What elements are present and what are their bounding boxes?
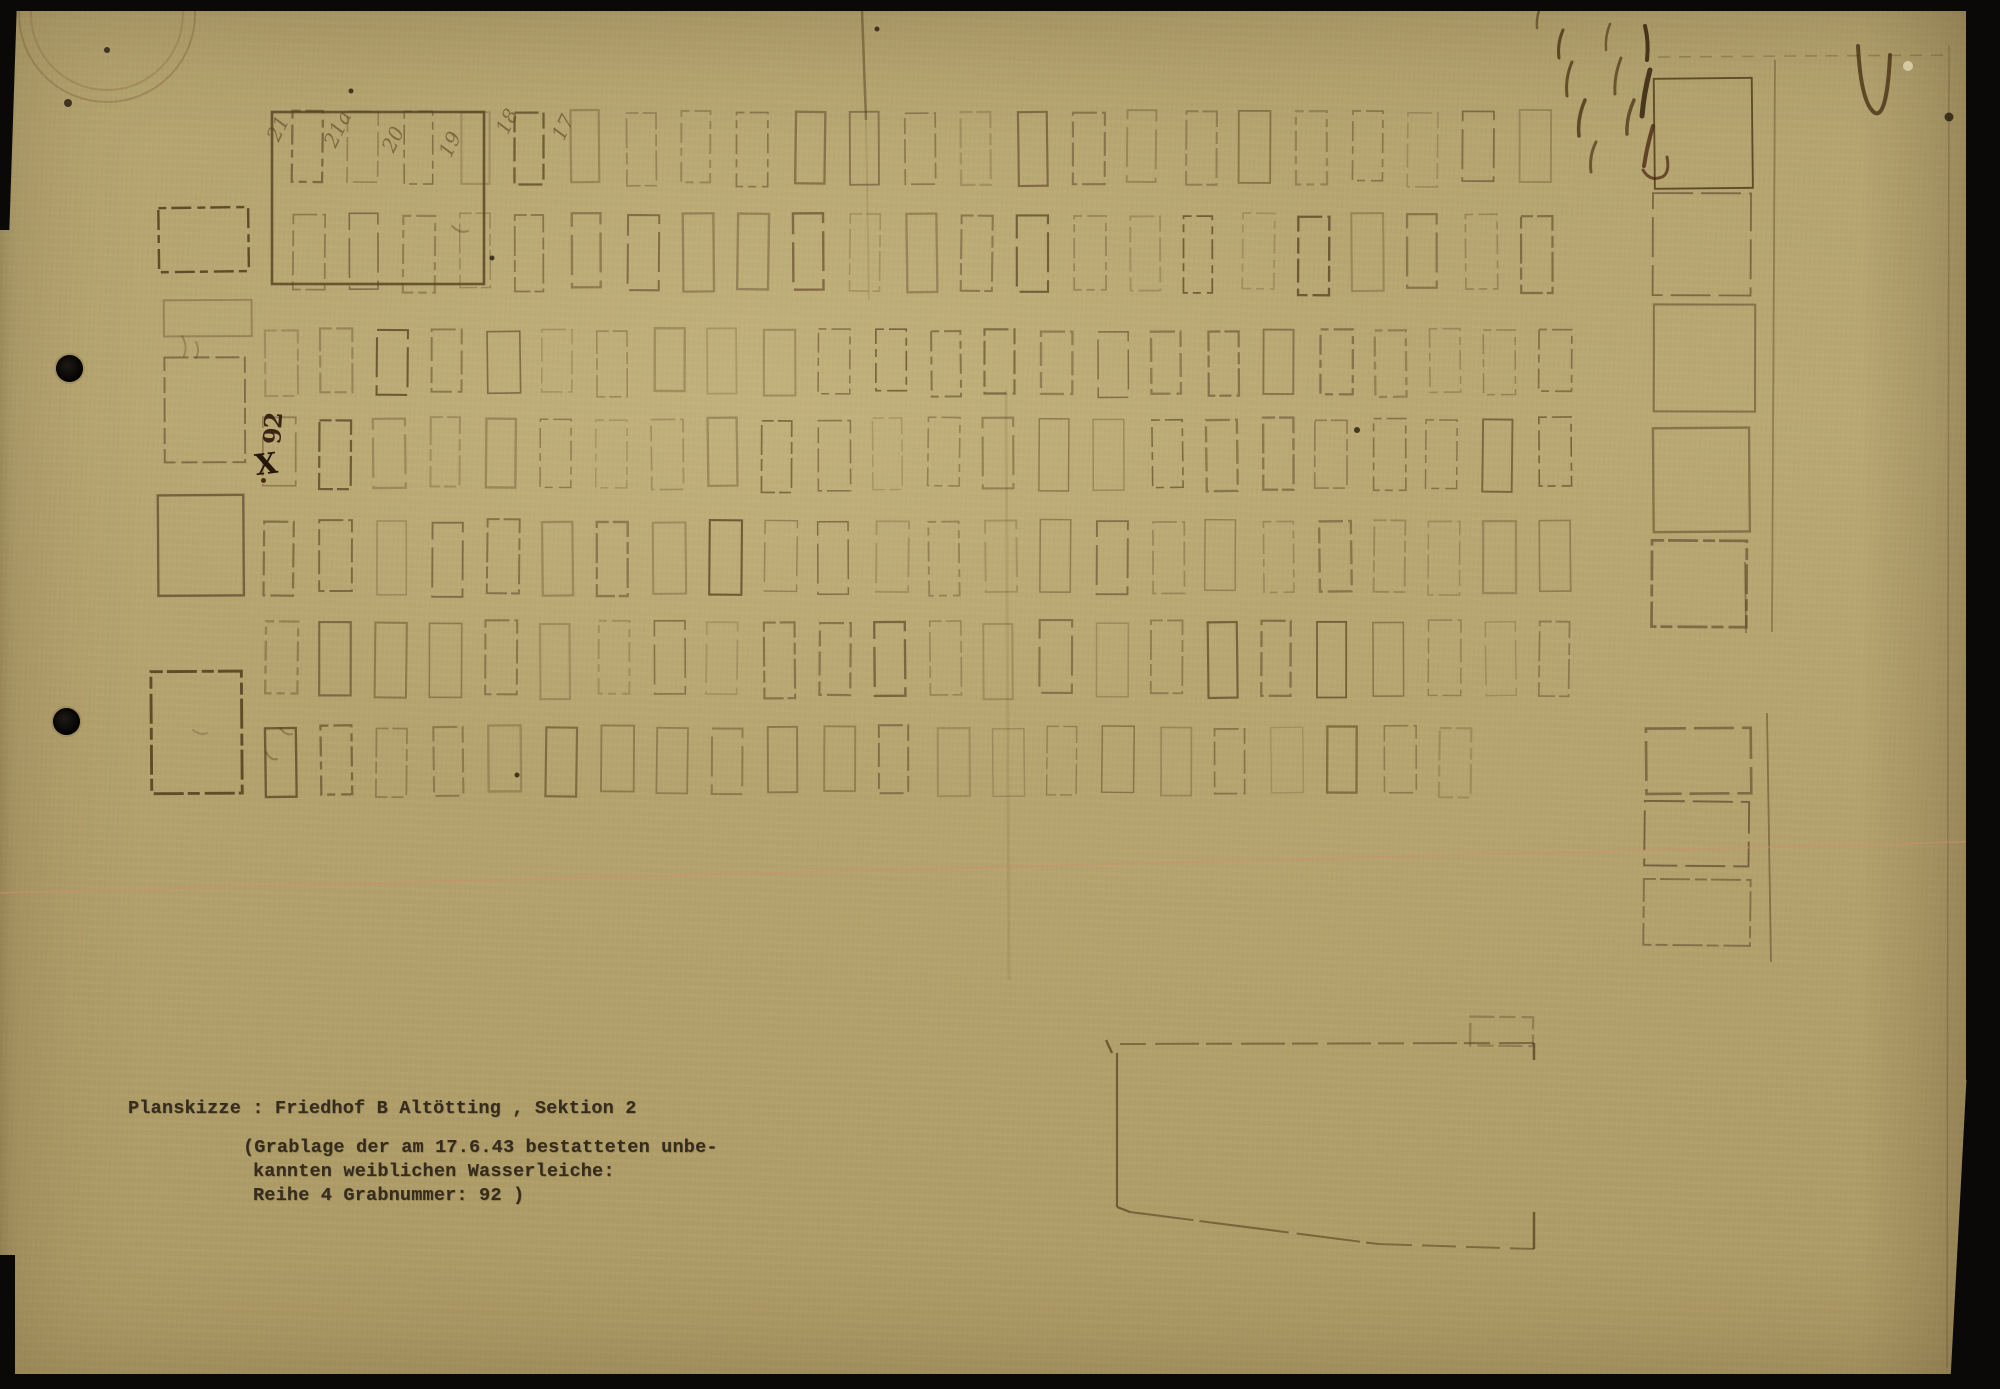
grave-cell-row-2 [1074,216,1106,290]
grave-cell-row-1 [1407,113,1438,187]
grave-cell-row-4 [1425,420,1457,489]
grave-cell-row-1 [1018,112,1048,186]
grave-cell-row-4 [319,420,351,489]
ink-speck [64,99,72,107]
grave-cell-row-6 [1373,622,1404,696]
grave-mark-cross: X [253,446,279,482]
ink-smudge [1644,126,1653,166]
right-plot [1644,801,1749,867]
grave-cell-row-3 [1483,330,1515,395]
grave-cell-row-3 [1041,332,1073,394]
grave-cell-row-4 [1039,419,1069,491]
grave-cell-row-6 [930,621,962,695]
grave-cell-row-3 [985,329,1015,393]
grave-mark-dot [261,478,266,483]
grave-cell-row-5 [1040,519,1071,592]
ink-smudge [1615,58,1621,94]
grave-cell-row-1 [1239,111,1271,183]
punch-hole-top [56,355,83,382]
grave-cell-row-1 [905,113,936,184]
grave-cell-row-4 [1206,420,1238,491]
boundary-line [1130,1212,1378,1244]
grave-cell-row-6 [1485,622,1516,696]
grave-cell-row-4 [596,420,627,488]
scan-edge-bottom [0,1374,2000,1389]
grave-cell-row-5 [1153,522,1185,594]
grave-cell-row-6 [1428,620,1461,695]
grave-cell-row-3 [764,330,795,396]
punch-hole-bottom [53,708,80,735]
grave-cell-row-3 [655,328,685,391]
grave-cell-row-2 [1298,217,1329,296]
grave-cell-row-2 [737,213,769,289]
ink-smudge [1642,70,1650,116]
grave-cell-row-2 [1242,213,1275,289]
grave-cell-row-5 [985,520,1017,592]
grave-cell-row-5 [876,521,909,592]
grave-cell-row-4 [708,418,738,486]
grave-cell-row-7 [656,728,688,794]
grave-cell-row-4 [1263,418,1294,490]
grave-cell-row-5 [319,520,352,591]
grave-cell-row-6 [540,624,570,699]
grave-cell-row-7 [1102,726,1135,793]
grave-cell-row-7 [1271,727,1304,793]
grave-cell-row-6 [319,622,351,695]
grave-cell-row-7 [768,727,798,792]
scan-edge-left-bottom [0,1255,15,1389]
grave-cell-row-4 [540,419,571,487]
grave-cell-row-5 [542,522,573,596]
grave-cell-row-2 [349,213,378,289]
grave-cell-row-4 [1374,419,1406,491]
ink-speck [1354,427,1360,433]
grave-cell-row-5 [1428,521,1460,595]
scan-edge-top [0,0,2000,11]
grave-cell-row-4 [1482,419,1512,492]
grave-cell-row-4 [1539,417,1572,486]
grave-cell-row-3 [1208,331,1239,395]
grave-cell-row-6 [1539,621,1570,696]
grave-cell-row-2 [1183,216,1212,293]
grave-cell-row-6 [265,621,298,693]
grave-cell-row-1 [627,113,657,186]
grave-cell-row-5 [487,519,520,593]
boundary-line [1745,562,1746,633]
ink-smudge [193,730,207,734]
ink-speck [349,89,354,94]
grave-cell-row-1 [681,111,710,183]
grave-cell-row-6 [429,623,461,697]
grave-cell-row-5 [764,520,797,591]
ink-smudge [1579,100,1585,136]
grave-cell-row-2 [460,213,491,288]
right-plot [1653,428,1750,533]
grave-cell-row-1 [404,111,433,184]
grave-cell-row-7 [545,727,577,796]
grave-cell-row-5 [597,522,628,596]
grave-cell-row-7 [601,725,634,791]
grave-cell-row-6 [599,621,630,694]
grave-cell-row-7 [1384,726,1416,793]
grave-cell-row-3 [542,329,572,391]
grave-cell-row-4 [872,418,902,490]
grave-cell-row-6 [485,620,517,694]
grave-cell-row-5 [653,522,686,594]
left-plot [158,207,249,272]
ink-speck [1945,113,1954,122]
right-plot [1643,879,1750,946]
grave-cell-row-2 [1017,215,1048,291]
grave-cell-row-3 [931,331,961,397]
grave-cell-row-4 [373,419,406,489]
grave-cell-row-7 [712,729,743,795]
paper-speck [1903,61,1913,71]
boundary-line [1947,45,1949,1368]
grave-cell-row-1 [1352,111,1383,181]
grave-cell-row-7 [1439,728,1471,798]
grave-cell-row-2 [1130,216,1160,290]
grave-cell-row-2 [572,213,601,287]
caption-note-line-2: kannten weiblichen Wasserleiche: [253,1161,615,1182]
caption-note-line-3: Reihe 4 Grabnummer: 92 ) [253,1185,524,1206]
ink-speck [875,27,880,32]
grave-cell-row-5 [1097,521,1128,594]
ink-smudge [1567,62,1572,96]
ink-smudge [1645,26,1648,60]
ink-smudge [182,336,198,358]
grave-cell-row-4 [928,417,960,486]
grave-cell-row-3 [1539,329,1572,391]
grave-cell-row-2 [628,215,660,290]
grave-cell-row-2 [515,215,544,292]
grave-cell-row-7 [433,727,463,796]
grave-cell-row-5 [928,522,959,596]
grave-cell-row-4 [1315,420,1347,488]
grave-cell-row-1 [292,111,323,182]
grave-cell-row-3 [487,331,521,393]
grave-cell-row-4 [761,421,791,493]
grave-cell-row-6 [874,622,905,696]
right-plot [1652,540,1747,627]
grave-cell-row-3 [707,328,737,393]
grave-cell-row-7 [1327,726,1357,792]
grave-cell-row-1 [461,112,489,184]
grave-cell-row-5 [263,522,293,596]
grave-cell-row-6 [1208,622,1238,698]
grave-cell-row-3 [1098,332,1129,398]
ink-smudge [266,728,292,759]
grave-cell-row-6 [1261,621,1291,696]
grave-cell-row-5 [709,520,742,595]
grave-cell-row-7 [879,725,908,793]
grave-cell-row-2 [1351,213,1383,291]
boundary-line [1378,1244,1534,1249]
grave-cell-row-5 [1483,521,1516,593]
grave-cell-row-1 [1296,111,1327,184]
boundary-line [1772,60,1775,632]
left-plot [164,357,245,462]
grave-cell-row-3 [265,330,298,396]
right-plot [1653,193,1751,296]
grave-cell-row-1 [795,112,825,184]
boundary-line [1658,55,1948,57]
caption-note-line-1: (Grablage der am 17.6.43 bestatteten unb… [243,1137,718,1158]
grave-cell-row-5 [432,523,463,597]
grave-cell-row-7 [1161,727,1191,795]
grave-cell-row-2 [849,214,880,291]
grave-cell-row-5 [1205,520,1236,591]
grave-cell-row-6 [1039,620,1072,693]
grave-cell-row-3 [1151,332,1181,394]
grave-cell-row-2 [683,213,714,291]
grave-cell-row-3 [1429,329,1460,393]
grave-cell-row-1 [850,112,879,185]
grave-cell-row-6 [375,623,407,698]
grave-cell-row-3 [320,328,353,392]
grave-cell-row-3 [1263,330,1293,394]
grave-cell-row-6 [1317,622,1346,698]
grave-cell-row-2 [293,214,325,289]
grave-cell-row-7 [265,728,297,797]
grave-cell-row-3 [1320,329,1352,394]
grave-cell-row-4 [818,421,850,491]
grave-cell-row-4 [1093,419,1124,490]
ink-speck [515,773,520,778]
boundary-line [1006,390,1009,980]
right-plot [1646,728,1751,794]
right-plot [1654,78,1753,189]
grave-cell-row-7 [376,728,407,797]
grave-cell-row-6 [1096,623,1128,697]
grave-cell-row-6 [654,621,685,694]
grave-cell-row-7 [824,726,855,791]
caption-title: Planskizze : Friedhof B Altötting , Sekt… [128,1098,637,1119]
grave-cell-row-5 [1263,521,1294,592]
boundary-line [1120,1043,1534,1044]
left-plot [158,495,244,596]
ink-smudge [1606,24,1610,50]
paper-sheet: 2121a20191817 92 X Planskizze : Friedhof… [0,0,2000,1389]
grave-cell-row-7 [1047,726,1077,795]
left-plot [164,300,252,337]
grave-cell-row-7 [938,728,970,796]
boundary-line [866,120,869,300]
grave-cell-row-1 [960,112,990,185]
grave-cell-row-5 [1319,521,1352,592]
boundary-line [1117,1207,1130,1212]
grave-cell-row-2 [1407,214,1437,288]
grave-cell-row-5 [1539,520,1571,591]
grave-mark-x92: 92 X [252,410,298,490]
grave-cell-row-1 [1462,111,1494,181]
grave-mark-number: 92 [257,412,288,445]
ink-smudge [1627,100,1634,134]
grave-cell-row-6 [764,622,795,698]
ink-smudge [1537,8,1540,28]
ink-speck [490,256,495,261]
boundary-line [1767,713,1771,962]
grave-cell-row-7 [1215,729,1245,794]
stamp-circle [31,0,183,90]
grave-cell-row-7 [488,725,521,791]
grave-cell-row-1 [1127,110,1157,182]
grave-cell-row-5 [377,521,406,595]
grave-cell-row-2 [403,216,435,293]
grave-cell-row-4 [430,417,460,487]
grave-cell-row-3 [431,329,461,391]
grave-cell-row-1 [736,112,768,186]
boundary-line [1106,1040,1112,1053]
grave-cell-row-1 [1520,110,1551,182]
right-plot [1654,304,1755,411]
ink-smudge [1591,142,1596,172]
grave-cell-row-4 [486,419,516,488]
grave-cell-row-5 [1374,520,1406,592]
grave-cell-row-4 [651,419,684,489]
scan-edge-right [1966,0,2000,1080]
grave-cell-row-7 [320,725,352,794]
ink-speck [104,47,110,53]
grave-cell-row-3 [818,329,850,394]
grave-cell-row-4 [983,418,1014,489]
grave-cell-row-6 [706,622,738,694]
grave-cell-row-6 [819,623,850,695]
fold-crease [0,841,2000,893]
grave-cell-row-2 [1521,216,1553,293]
grave-cell-row-6 [1151,620,1183,693]
grave-cell-row-3 [377,330,408,395]
grave-cell-row-3 [876,329,906,391]
ink-smudge [1559,30,1564,58]
grave-cell-row-1 [1073,113,1105,185]
grave-cell-row-2 [793,213,824,289]
grave-cell-row-1 [1186,111,1217,185]
scan-background: 2121a20191817 92 X Planskizze : Friedhof… [0,0,2000,1389]
boundary-line [862,10,866,120]
grave-cell-row-3 [597,331,628,397]
grave-cell-row-2 [961,215,993,291]
grave-cell-row-3 [1375,330,1407,397]
grave-cell-row-2 [1465,214,1497,289]
misc-rect [1470,1017,1533,1047]
grave-cell-row-2 [906,213,937,292]
grave-cell-row-4 [1152,420,1183,488]
grave-cell-row-5 [818,522,849,595]
